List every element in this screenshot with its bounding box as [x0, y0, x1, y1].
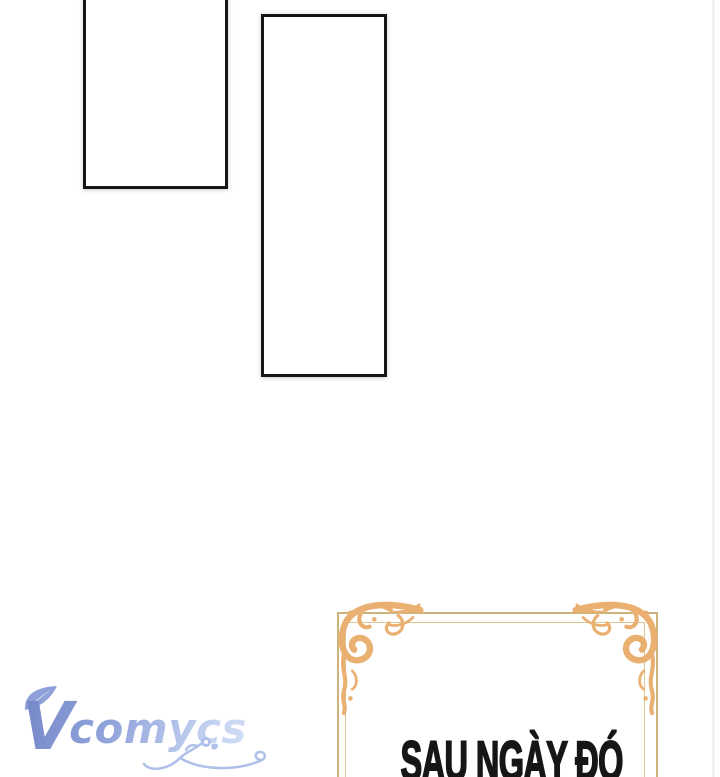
comic-page: SAU NGÀY ĐÓ Vcomycs	[0, 0, 720, 777]
rose-flourish-icon	[140, 736, 270, 776]
corner-flourish-right-icon	[572, 597, 664, 717]
corner-flourish-left-icon	[332, 597, 424, 717]
empty-panel-tall	[261, 14, 387, 377]
empty-panel-top-left	[83, 0, 228, 189]
caption-text: SAU NGÀY ĐÓ	[401, 733, 596, 777]
page-edge-line	[712, 0, 715, 777]
watermark-logo: Vcomycs	[22, 688, 272, 777]
watermark-initial: V	[22, 688, 69, 765]
ornate-caption-frame: SAU NGÀY ĐÓ	[330, 595, 666, 777]
